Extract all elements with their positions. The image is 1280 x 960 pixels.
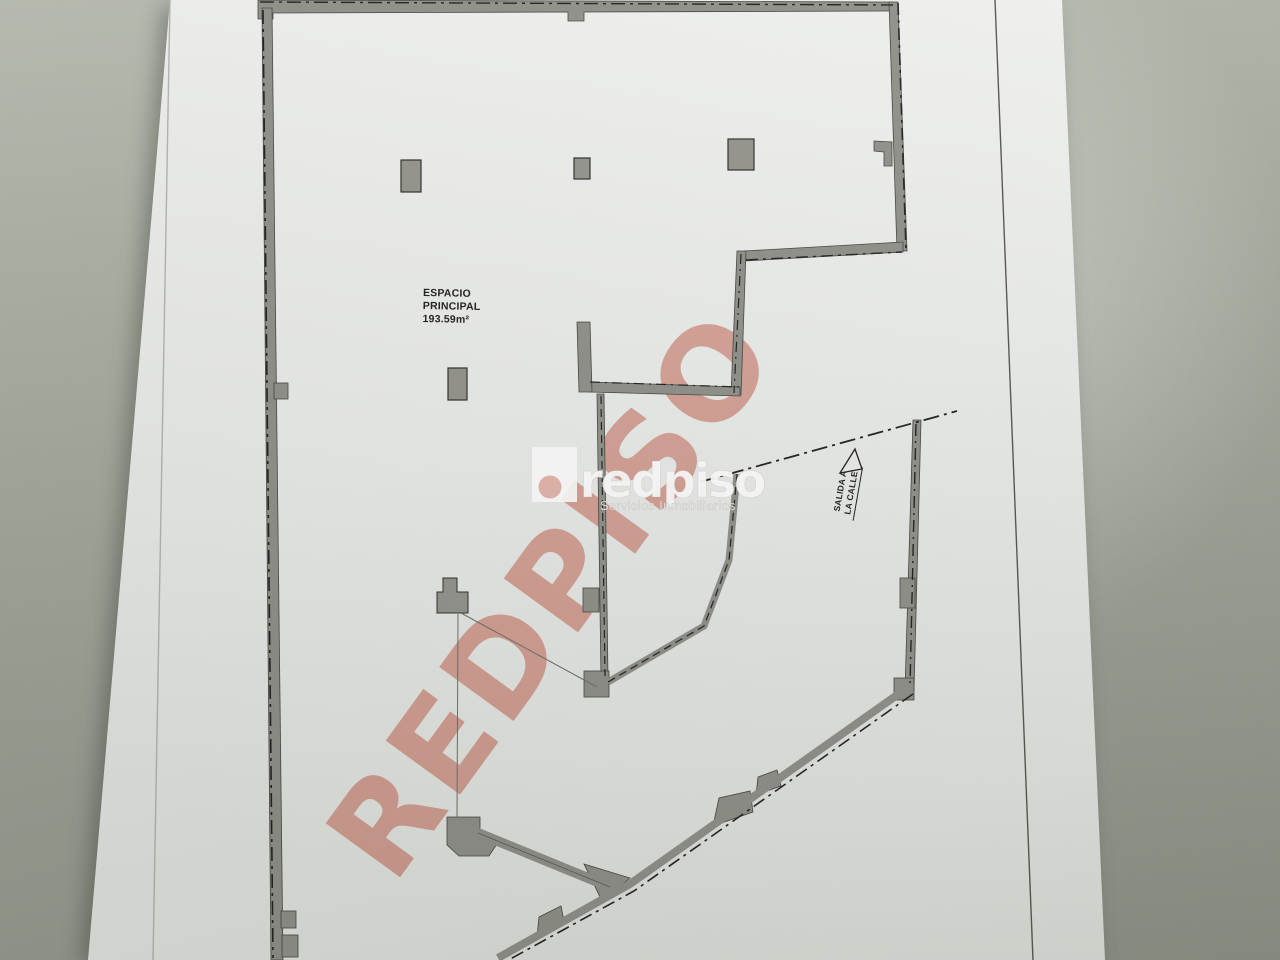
pillar-with-notch <box>437 578 468 613</box>
partition-walls <box>583 394 609 697</box>
right-wall-notch <box>874 141 892 166</box>
partition-tab <box>583 588 599 612</box>
top-wall <box>258 0 893 21</box>
left-wall-tab <box>274 383 288 399</box>
pillar <box>401 160 421 192</box>
photo-of-floorplan: REDPISO <box>0 0 1280 960</box>
floorplan-drawing: ESPACIO PRINCIPAL 193.59m² SALIDA A LA C… <box>0 0 1280 960</box>
room-label: ESPACIO PRINCIPAL 193.59m² <box>422 287 481 326</box>
left-wall-tab <box>281 911 296 928</box>
logo-tagline: Servicios Inmobiliarios <box>600 499 736 513</box>
pillars <box>401 139 754 400</box>
pillar <box>574 158 590 179</box>
thin-partition-line <box>457 614 458 818</box>
svg-text:ESPACIO: ESPACIO <box>423 287 471 300</box>
logo-circle-cutout <box>539 476 562 499</box>
pillar <box>728 139 754 170</box>
brand-logo: redpiso Servicios Inmobiliarios <box>532 447 765 513</box>
svg-text:193.59m²: 193.59m² <box>422 313 469 326</box>
interior-diagonal-edge <box>478 833 610 887</box>
svg-text:PRINCIPAL: PRINCIPAL <box>423 300 481 313</box>
left-wall-tab <box>282 935 298 957</box>
partition-left-wall <box>597 394 608 678</box>
mid-vertical-wall <box>731 251 746 395</box>
interior-structures <box>437 578 610 887</box>
stub-wall <box>577 322 592 392</box>
drawing-border-lines <box>995 0 1033 960</box>
pillar <box>448 368 467 400</box>
upper-right-wall <box>744 242 903 261</box>
sheet-edge-line <box>153 0 170 960</box>
thin-partition-line <box>461 613 597 687</box>
exit-arrow-icon <box>840 449 862 473</box>
